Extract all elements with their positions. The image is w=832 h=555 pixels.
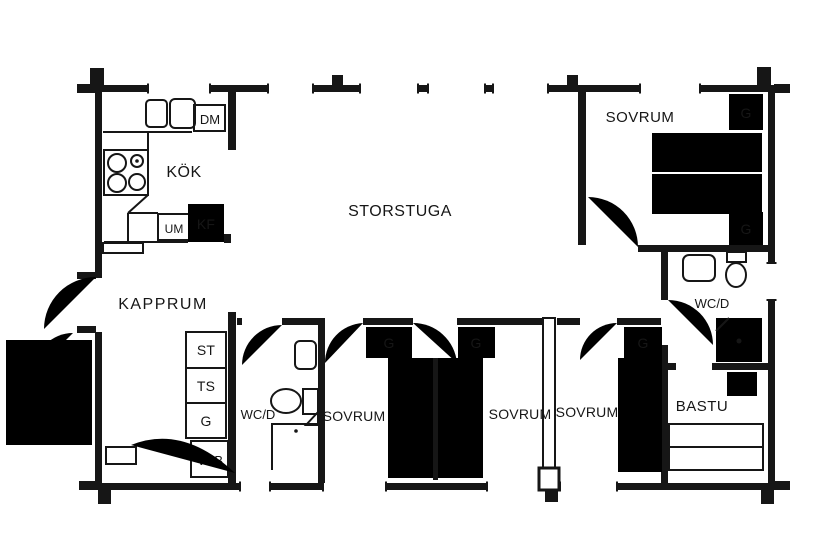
wc-shower-left: WC/D [241,325,318,470]
shower-icon [272,412,318,470]
sauna: BASTU [669,372,763,470]
door-arc [580,323,617,360]
shower-icon [716,318,762,362]
wc-shower-right: WC/D [668,252,762,362]
wardrobe-icon: G [366,327,412,358]
room-label-bedroom-s3: SOVRUM [556,404,619,420]
wardrobe-icon: G [729,94,763,130]
wardrobe-icon: G [458,327,495,358]
bed-icon [652,174,762,214]
bed-icon [438,358,483,478]
bed-icon [388,358,433,478]
wardrobe-label: G [200,413,211,429]
door-arc [44,277,96,329]
dishwasher-label: DM [200,112,220,127]
window [323,482,386,492]
window [767,263,777,300]
wardrobe-label: G [637,335,648,351]
wardrobe-icon: G [729,212,763,245]
bed-icon [652,133,762,172]
closet-st: ST [186,332,226,368]
bed-icon [618,358,662,472]
room-label-living-room: STORSTUGA [348,203,452,220]
door-arc [588,197,638,247]
bedroom-ne: SOVRUM G G [588,94,763,247]
floor-plan-drawing: DM UM KF KÖK STORSTUGA SOVRUM [0,0,832,555]
room-label-bedroom-ne: SOVRUM [606,109,675,126]
fridge-freezer-label: KF [197,216,215,232]
entry [6,272,96,445]
room-label-wc-right: WC/D [695,296,730,311]
porch [6,340,92,445]
room-label-cloakroom: KAPPRUM [118,296,208,313]
door-arc [242,325,282,365]
sink-icon [683,255,715,281]
toilet-icon [726,252,746,287]
wardrobe-label: G [383,335,394,351]
window [640,84,700,94]
wardrobe-label: G [740,221,751,237]
wardrobe-label: G [470,335,481,351]
closet-ts: TS [186,368,226,403]
closet-ts-label: TS [197,378,215,394]
wardrobe-icon: G [624,327,662,358]
toilet-icon [271,389,318,414]
closet-st-label: ST [197,342,216,358]
shoe-bench-icon [102,447,142,470]
room-label-wc-left: WC/D [241,407,276,422]
window [428,84,485,94]
room-label-bedroom-s1: SOVRUM [323,408,386,424]
door-arc [325,323,363,363]
sauna-bench [669,447,763,470]
cloakroom: KAPPRUM ST TS G VVB [102,296,235,477]
window [493,84,548,94]
window [487,482,543,492]
closet-g: G [186,403,226,438]
wardrobe-label: G [740,105,751,121]
sink-icon [170,99,195,128]
room-label-bedroom-s2: SOVRUM [489,406,552,422]
sink-icon [146,100,167,127]
room-label-sauna: BASTU [676,398,729,415]
bedroom-s1: SOVRUM G [323,323,433,478]
coat-rack-icon [112,336,130,446]
floor-plan-canvas: DM UM KF KÖK STORSTUGA SOVRUM [0,0,832,555]
window [268,84,313,94]
sauna-heater-icon [727,372,757,396]
window [560,482,617,492]
window [148,84,210,94]
wall-stub-hatched [103,243,143,253]
stove-icon [104,150,148,195]
window [360,84,418,94]
sink-icon [295,341,316,369]
window [240,482,270,492]
bedroom-s3: SOVRUM G [556,323,662,472]
room-label-kitchen: KÖK [166,163,201,181]
sauna-bench [669,424,763,447]
oven-microwave-label: UM [165,222,184,236]
door-arc [413,323,457,363]
kitchen: DM UM KF KÖK [103,94,231,253]
